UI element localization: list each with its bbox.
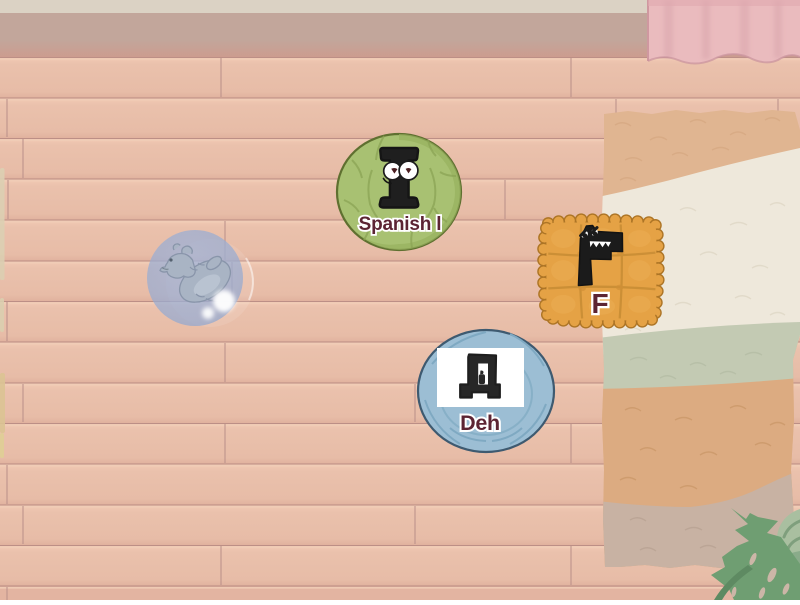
svg-text:F: F: [591, 288, 608, 319]
svg-text:Spanish l: Spanish l: [359, 214, 442, 235]
svg-text:Deh: Deh: [460, 411, 500, 435]
